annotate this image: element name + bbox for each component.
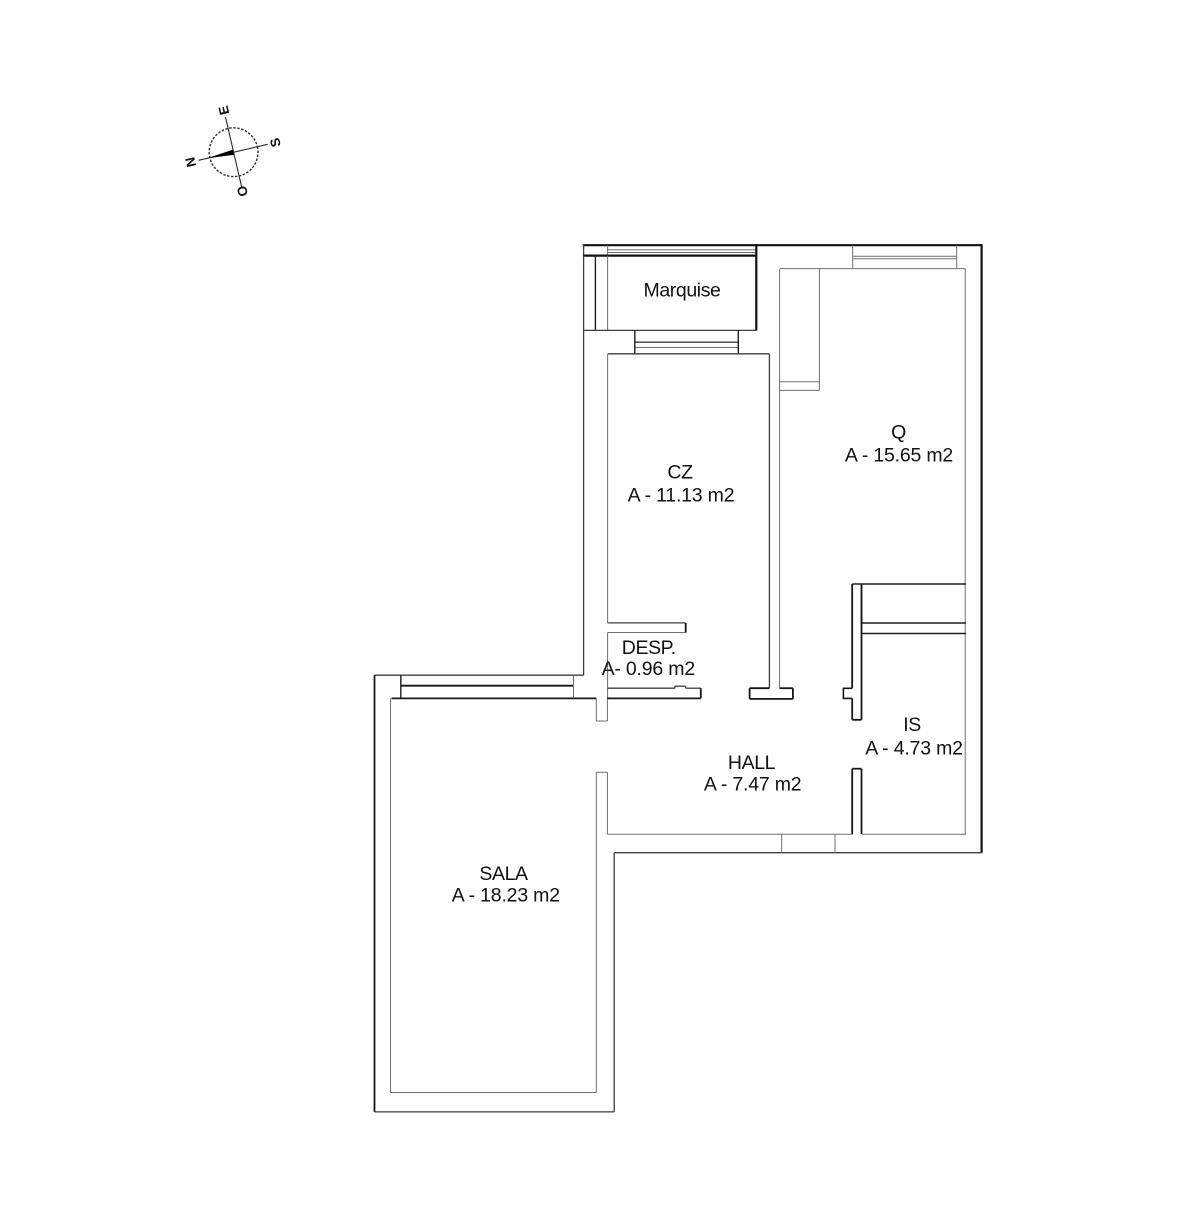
- svg-text:DESP.: DESP.: [622, 637, 676, 659]
- svg-text:Marquise: Marquise: [644, 279, 721, 301]
- svg-text:A - 4.73 m2: A - 4.73 m2: [865, 738, 963, 760]
- svg-text:HALL: HALL: [728, 752, 776, 774]
- svg-text:IS: IS: [903, 714, 921, 736]
- svg-text:A - 15.65 m2: A - 15.65 m2: [845, 445, 953, 467]
- svg-text:A- 0.96 m2: A- 0.96 m2: [602, 658, 695, 680]
- svg-text:A - 11.13 m2: A - 11.13 m2: [628, 485, 735, 507]
- svg-text:A - 7.47 m2: A - 7.47 m2: [704, 774, 802, 796]
- svg-text:SALA: SALA: [479, 863, 528, 885]
- svg-text:CZ: CZ: [667, 462, 693, 484]
- svg-text:A - 18.23 m2: A - 18.23 m2: [452, 885, 560, 907]
- svg-text:Q: Q: [891, 422, 906, 444]
